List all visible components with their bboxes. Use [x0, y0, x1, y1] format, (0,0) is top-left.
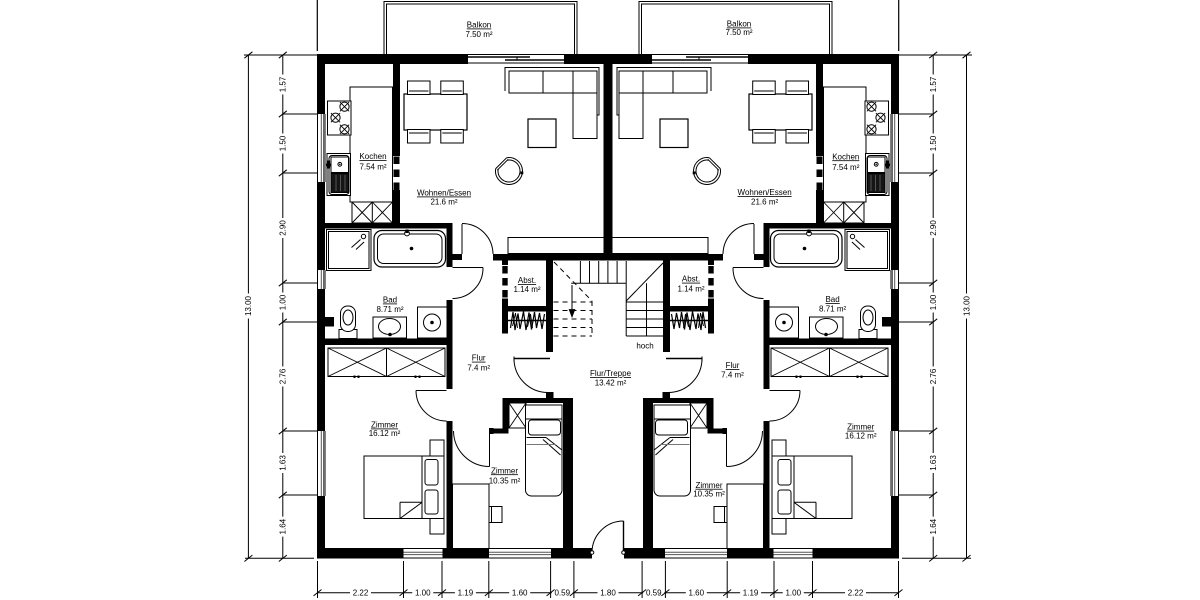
svg-text:7.50 m²: 7.50 m² [465, 30, 492, 39]
svg-text:2.76: 2.76 [279, 368, 288, 384]
svg-text:10.35 m²: 10.35 m² [693, 489, 725, 498]
svg-text:Flur: Flur [726, 361, 740, 370]
svg-text:7.54 m²: 7.54 m² [832, 163, 859, 172]
svg-text:Wohnen/Essen: Wohnen/Essen [738, 188, 792, 197]
svg-text:1.57: 1.57 [279, 76, 288, 92]
svg-text:1.64: 1.64 [279, 518, 288, 534]
svg-text:hoch: hoch [636, 342, 653, 351]
svg-text:8.71 m²: 8.71 m² [819, 305, 846, 314]
svg-text:16.12 m²: 16.12 m² [369, 429, 401, 438]
svg-text:21.6 m²: 21.6 m² [751, 198, 778, 207]
svg-text:Abst.: Abst. [518, 276, 536, 285]
svg-text:2.90: 2.90 [929, 220, 938, 236]
svg-text:Flur: Flur [472, 354, 486, 363]
svg-text:Kochen: Kochen [359, 152, 386, 161]
svg-text:2.22: 2.22 [353, 589, 369, 598]
svg-text:1.19: 1.19 [743, 589, 759, 598]
svg-text:1.60: 1.60 [512, 589, 528, 598]
svg-text:1.50: 1.50 [279, 135, 288, 151]
svg-text:1.63: 1.63 [279, 455, 288, 471]
svg-text:7.50 m²: 7.50 m² [725, 28, 752, 37]
svg-text:1.60: 1.60 [689, 589, 705, 598]
svg-text:Flur/Treppe: Flur/Treppe [590, 369, 632, 378]
svg-text:1.64: 1.64 [929, 518, 938, 534]
svg-text:8.71 m²: 8.71 m² [376, 305, 403, 314]
svg-text:Zimmer: Zimmer [491, 466, 518, 475]
svg-text:1.57: 1.57 [929, 76, 938, 92]
svg-text:13.00: 13.00 [244, 295, 253, 316]
svg-text:13.00: 13.00 [962, 295, 971, 316]
svg-text:1.00: 1.00 [415, 589, 431, 598]
svg-text:2.22: 2.22 [848, 589, 864, 598]
svg-text:1.14 m²: 1.14 m² [513, 285, 540, 294]
svg-text:13.42 m²: 13.42 m² [595, 379, 627, 388]
svg-text:7.4 m²: 7.4 m² [467, 364, 490, 373]
svg-text:1.00: 1.00 [785, 589, 801, 598]
svg-text:0.59: 0.59 [646, 589, 662, 598]
svg-text:Kochen: Kochen [832, 152, 859, 161]
svg-text:1.50: 1.50 [929, 135, 938, 151]
svg-text:1.80: 1.80 [600, 589, 616, 598]
svg-text:7.54 m²: 7.54 m² [359, 163, 386, 172]
svg-text:16.12 m²: 16.12 m² [845, 431, 877, 440]
svg-text:1.19: 1.19 [458, 589, 474, 598]
svg-text:Bad: Bad [825, 295, 839, 304]
svg-text:7.4 m²: 7.4 m² [721, 371, 744, 380]
svg-text:1.14 m²: 1.14 m² [677, 285, 704, 294]
svg-text:Balkon: Balkon [467, 21, 491, 30]
svg-text:Wohnen/Essen: Wohnen/Essen [417, 189, 471, 198]
svg-text:10.35 m²: 10.35 m² [489, 477, 521, 486]
svg-text:Abst.: Abst. [682, 275, 700, 284]
svg-text:21.6 m²: 21.6 m² [430, 198, 457, 207]
svg-text:Bad: Bad [383, 296, 397, 305]
svg-text:0.59: 0.59 [554, 589, 570, 598]
svg-text:2.76: 2.76 [929, 368, 938, 384]
svg-text:2.90: 2.90 [279, 220, 288, 236]
svg-text:1.00: 1.00 [279, 294, 288, 310]
svg-text:1.63: 1.63 [929, 455, 938, 471]
svg-text:1.00: 1.00 [929, 294, 938, 310]
